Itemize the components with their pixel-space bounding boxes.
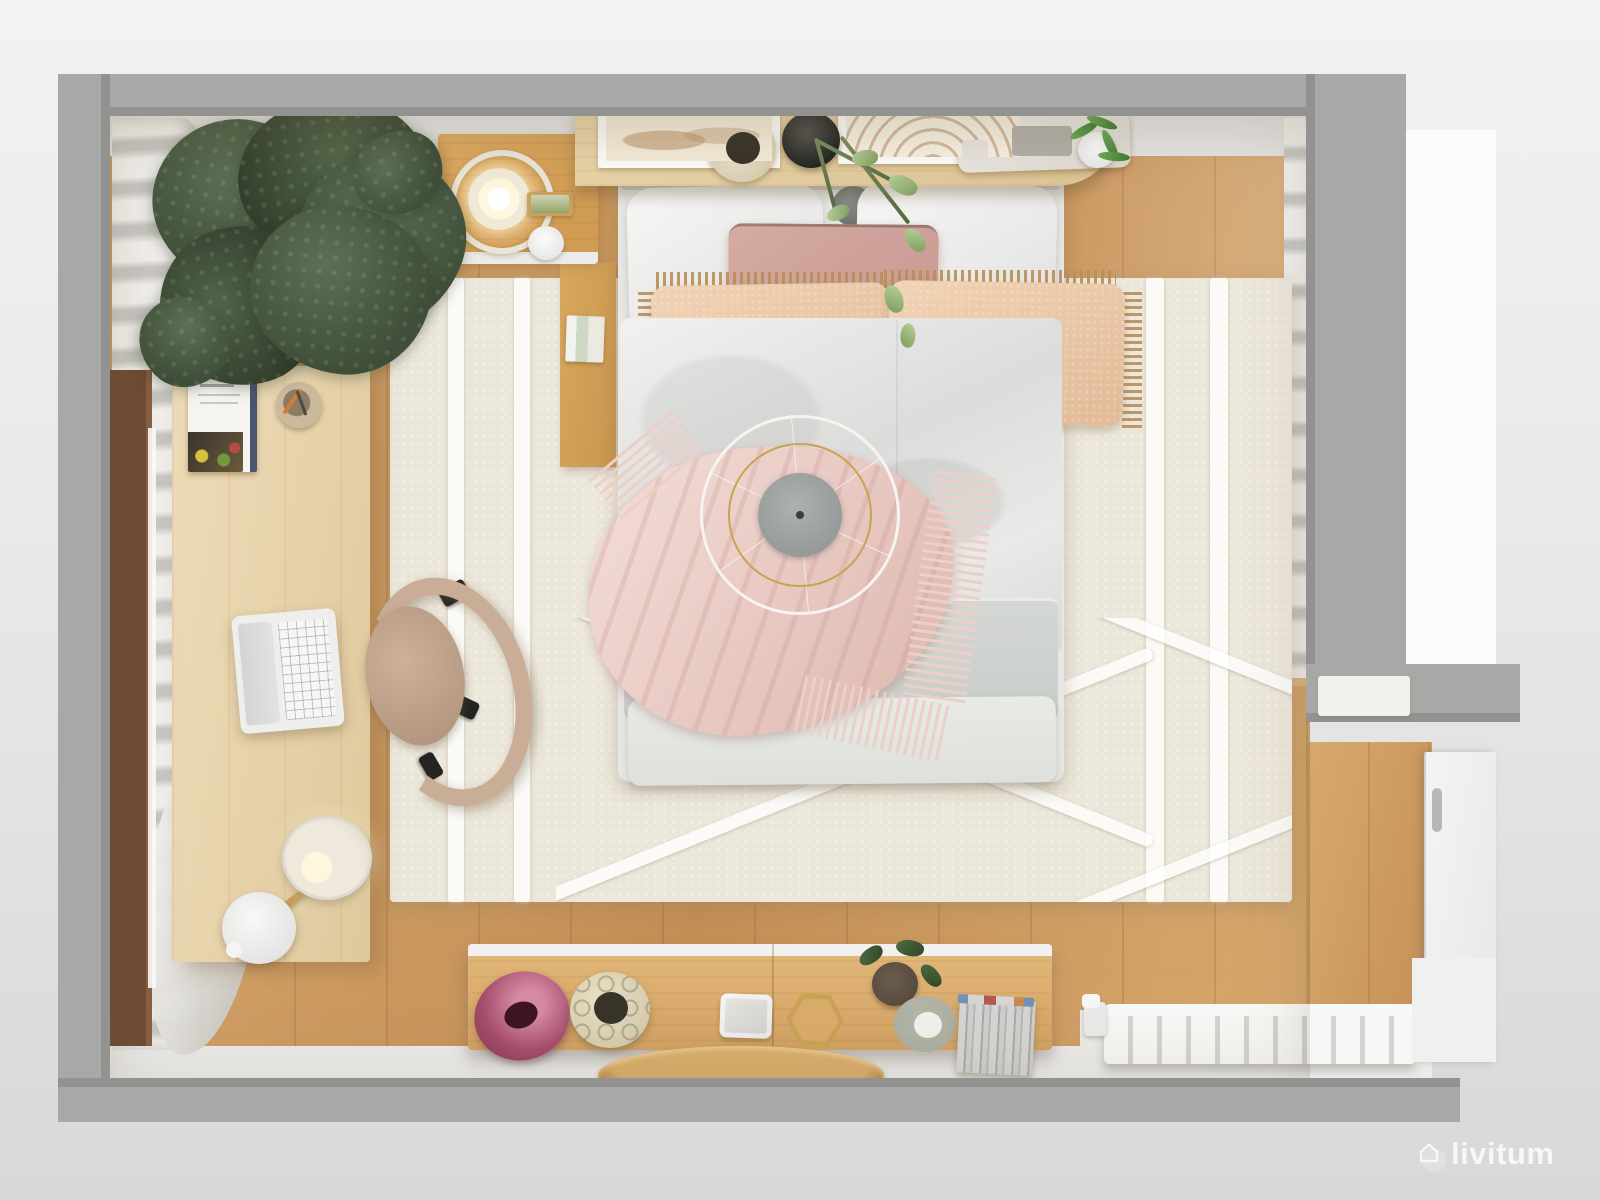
ceiling-pendant-lamp <box>700 415 900 615</box>
book-row <box>956 998 1036 1076</box>
adjacent-bright-space <box>1404 130 1496 714</box>
bedside-ledge <box>560 262 616 467</box>
right-window-sill <box>1318 676 1410 716</box>
rug-stripe <box>514 278 530 902</box>
radiator <box>1104 1008 1416 1064</box>
left-window-frame <box>106 370 152 1046</box>
laptop-screen <box>238 621 281 726</box>
floor-lamp-shade <box>282 816 372 900</box>
chain-vase-opening <box>594 992 628 1024</box>
left-window-light <box>148 428 156 988</box>
photo-frame-picture <box>531 195 569 213</box>
house-outline-icon <box>1414 1137 1444 1172</box>
pencil-cup <box>276 382 322 428</box>
sideboard-plate-center <box>914 1012 942 1038</box>
radiator-knob <box>1082 994 1100 1008</box>
sideboard-back-edge <box>468 944 1052 956</box>
sideboard-divider <box>772 944 774 1050</box>
laptop-keyboard <box>278 618 336 720</box>
cookbook-cover-photo <box>188 432 243 472</box>
vase-opening <box>726 132 760 164</box>
radiator-top-edge <box>1104 1004 1416 1016</box>
small-book-stack <box>565 315 605 362</box>
watermark-brand: livitum <box>1451 1136 1554 1172</box>
floor-lamp-cap <box>226 942 242 958</box>
black-planter <box>782 112 840 168</box>
wall-top <box>60 74 1406 116</box>
white-candle <box>528 226 564 260</box>
bedroom-top-view-render: livitum <box>0 0 1600 1200</box>
door-handle <box>1432 788 1442 832</box>
tray-step <box>962 140 988 166</box>
watermark: livitum <box>1414 1136 1554 1172</box>
pendant-cable-dot <box>796 511 804 519</box>
door-lower-panel <box>1412 958 1496 1062</box>
wall-right <box>1306 74 1406 722</box>
tray-opening <box>1012 126 1072 156</box>
laptop <box>231 608 345 735</box>
wall-left <box>58 74 110 1122</box>
pillow-fringe <box>1122 292 1142 428</box>
wall-bottom <box>58 1078 1460 1122</box>
square-dish <box>719 993 773 1039</box>
